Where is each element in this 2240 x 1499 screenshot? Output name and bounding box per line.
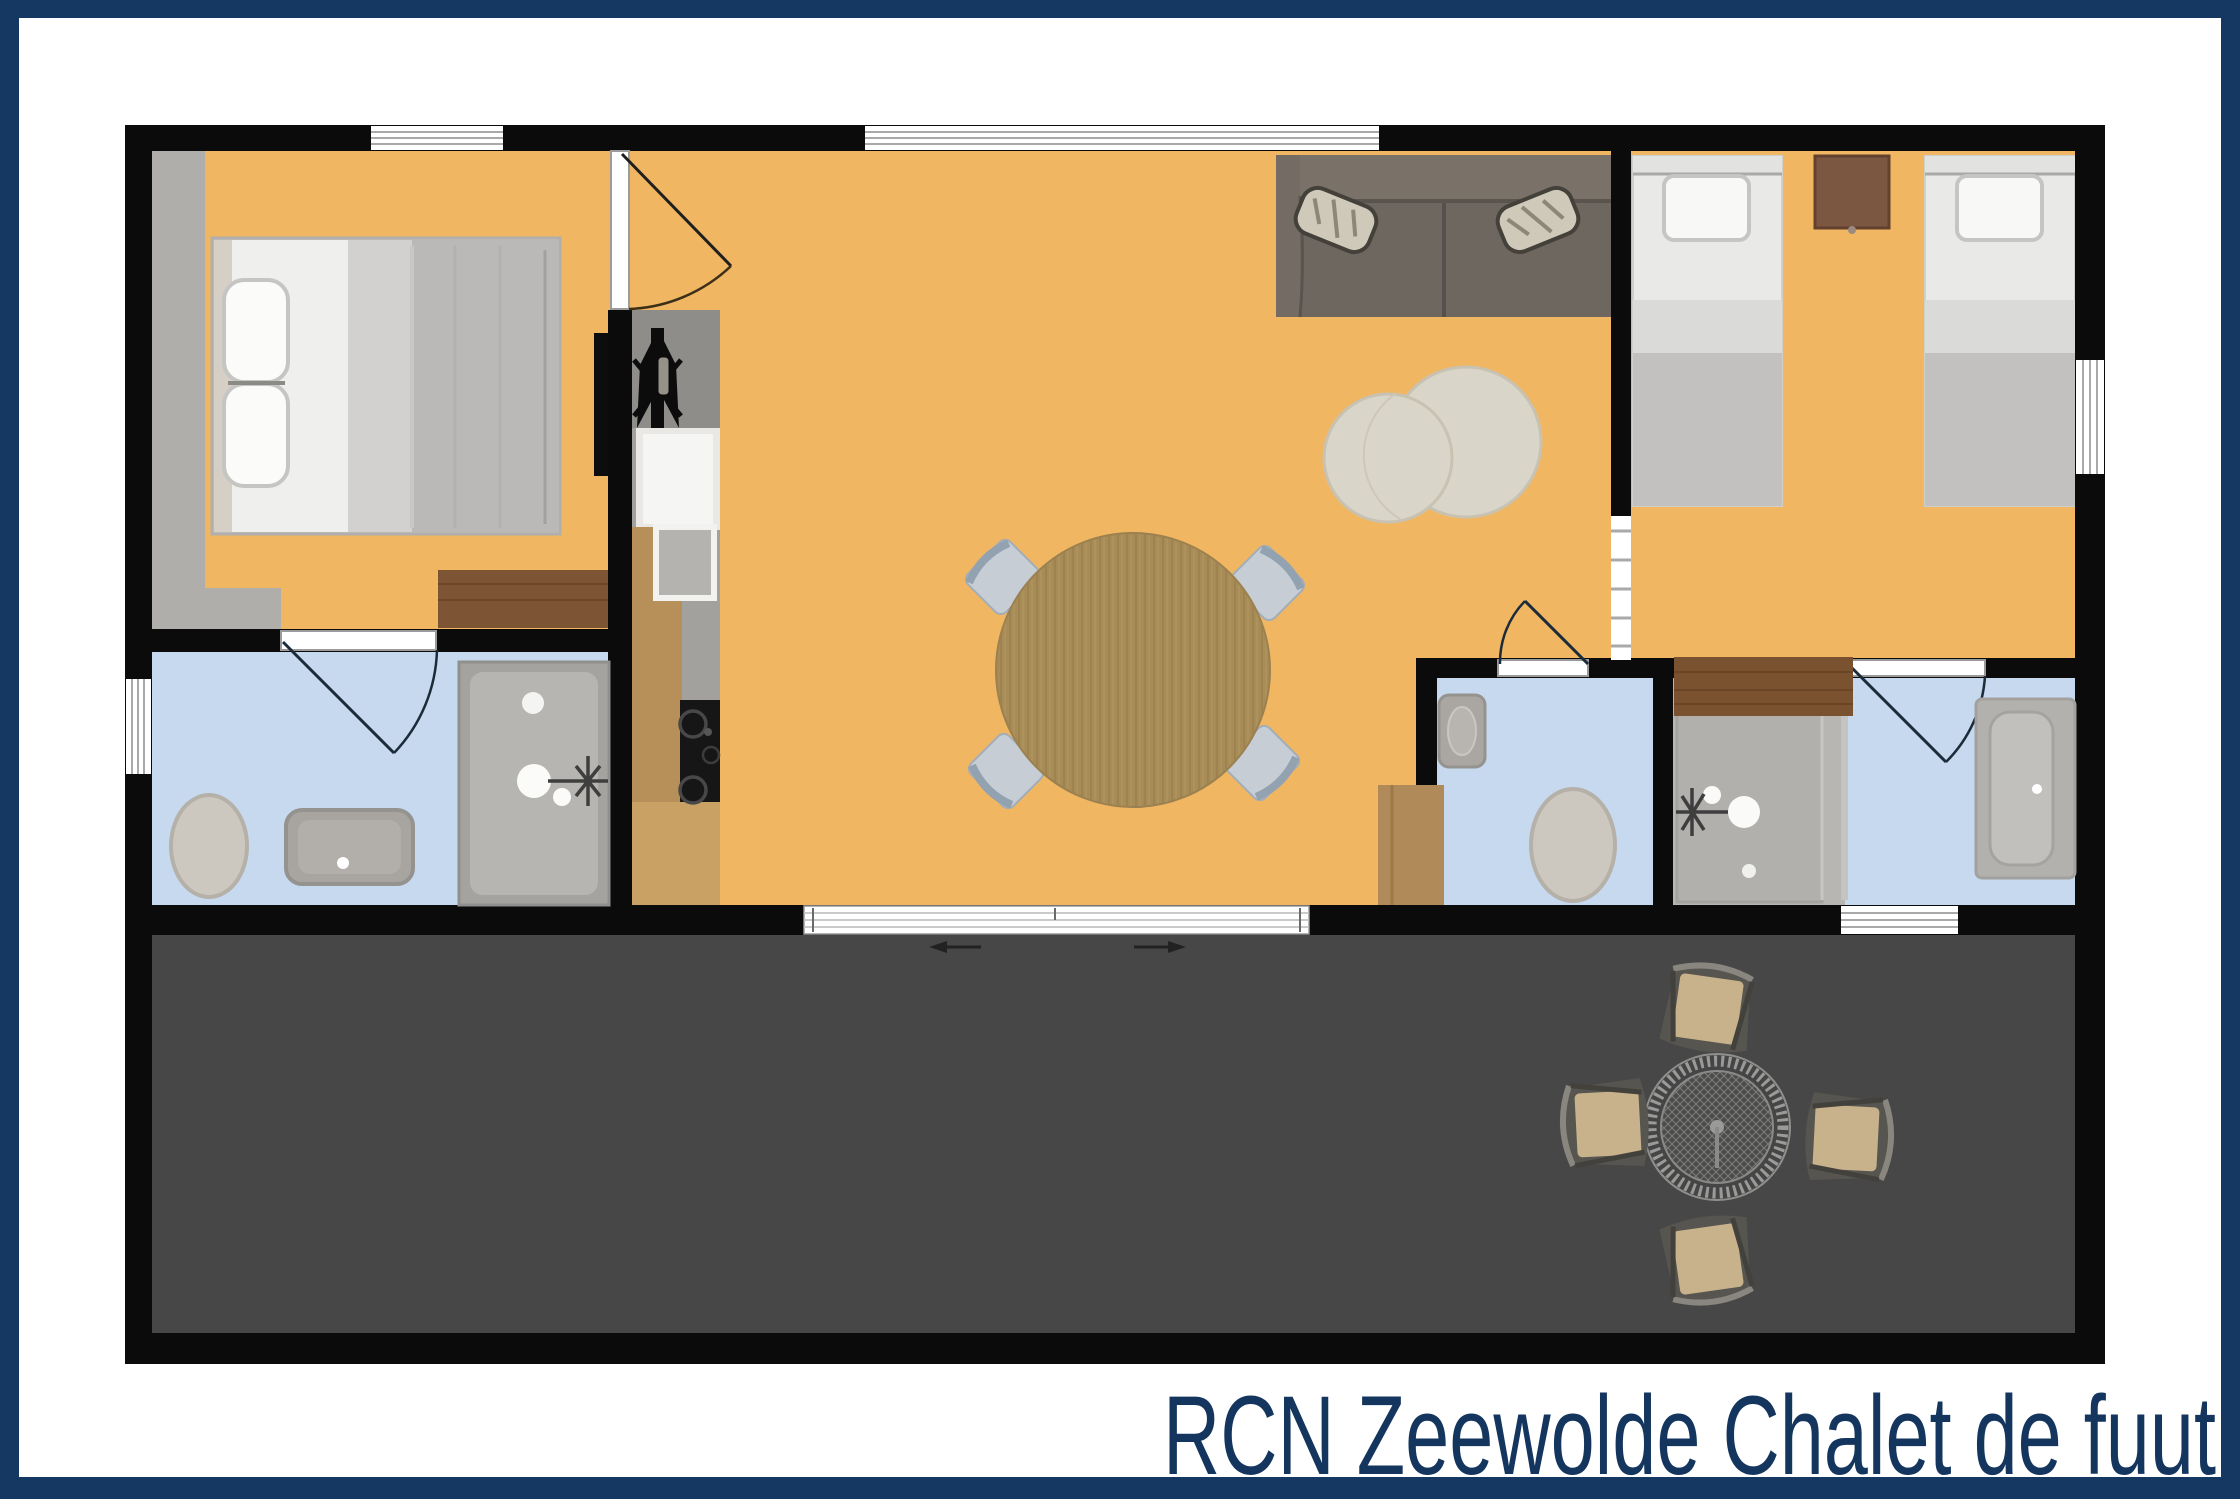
svg-text:RCN Zeewolde Chalet de fuut: RCN Zeewolde Chalet de fuut — [1163, 1373, 2216, 1498]
